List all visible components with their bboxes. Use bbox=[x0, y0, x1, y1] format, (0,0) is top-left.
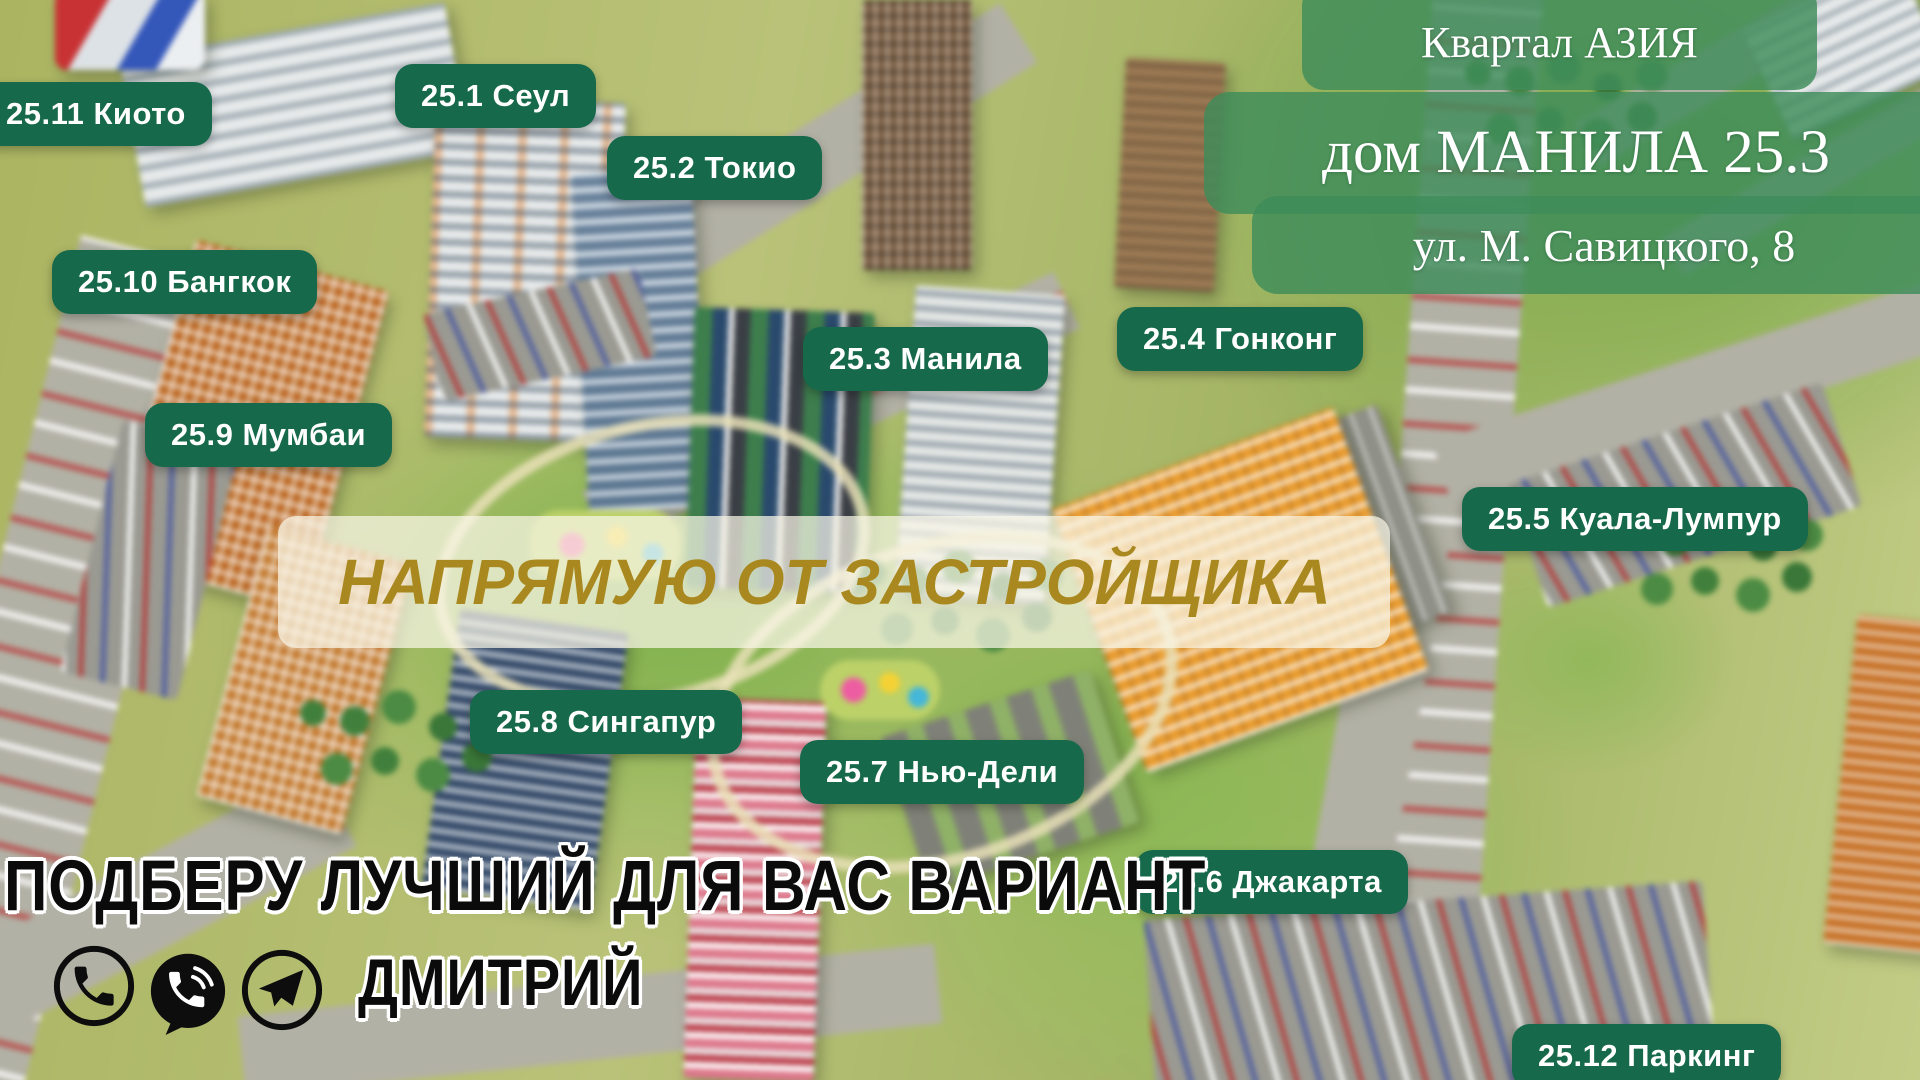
building-label-25-11: 25.11 Киото bbox=[0, 82, 212, 146]
promo-headline: ПОДБЕРУ ЛУЧШИЙ ДЛЯ ВАС ВАРИАНТ bbox=[4, 846, 1206, 927]
building-label-text: 25.7 Нью-Дели bbox=[826, 754, 1058, 789]
building-label-25-1: 25.1 Сеул bbox=[395, 64, 596, 128]
building-label-text: 25.5 Куала-Лумпур bbox=[1488, 501, 1782, 536]
viber-icon[interactable] bbox=[146, 951, 230, 1035]
promo-poster: Квартал АЗИЯ дом МАНИЛА 25.3 ул. М. Сави… bbox=[0, 0, 1920, 1080]
building-label-25-9: 25.9 Мумбаи bbox=[145, 403, 392, 467]
building-label-text: 25.11 Киото bbox=[6, 96, 186, 131]
building-label-text: 25.1 Сеул bbox=[421, 78, 570, 113]
contact-icons-row bbox=[52, 944, 324, 1035]
telegram-icon[interactable] bbox=[240, 948, 324, 1032]
building-label-25-2: 25.2 Токио bbox=[607, 136, 822, 200]
building-label-text: 25.10 Бангкок bbox=[78, 264, 291, 299]
building-label-text: 25.3 Манила bbox=[829, 341, 1022, 376]
building-label-text: 25.12 Паркинг bbox=[1538, 1038, 1755, 1073]
agent-name: ДМИТРИЙ bbox=[358, 944, 643, 1020]
building-label-25-5: 25.5 Куала-Лумпур bbox=[1462, 487, 1808, 551]
building-label-25-4: 25.4 Гонконг bbox=[1117, 307, 1363, 371]
building-label-25-3: 25.3 Манила bbox=[803, 327, 1048, 391]
building-label-25-8: 25.8 Сингапур bbox=[470, 690, 742, 754]
building-label-text: 25.2 Токио bbox=[633, 150, 796, 185]
building-label-text: 25.4 Гонконг bbox=[1143, 321, 1337, 356]
phone-icon[interactable] bbox=[52, 944, 136, 1028]
building-label-text: 25.9 Мумбаи bbox=[171, 417, 366, 452]
building-label-text: 25.8 Сингапур bbox=[496, 704, 716, 739]
building-label-25-10: 25.10 Бангкок bbox=[52, 250, 317, 314]
building-label-25-12: 25.12 Паркинг bbox=[1512, 1024, 1781, 1080]
building-label-25-7: 25.7 Нью-Дели bbox=[800, 740, 1084, 804]
